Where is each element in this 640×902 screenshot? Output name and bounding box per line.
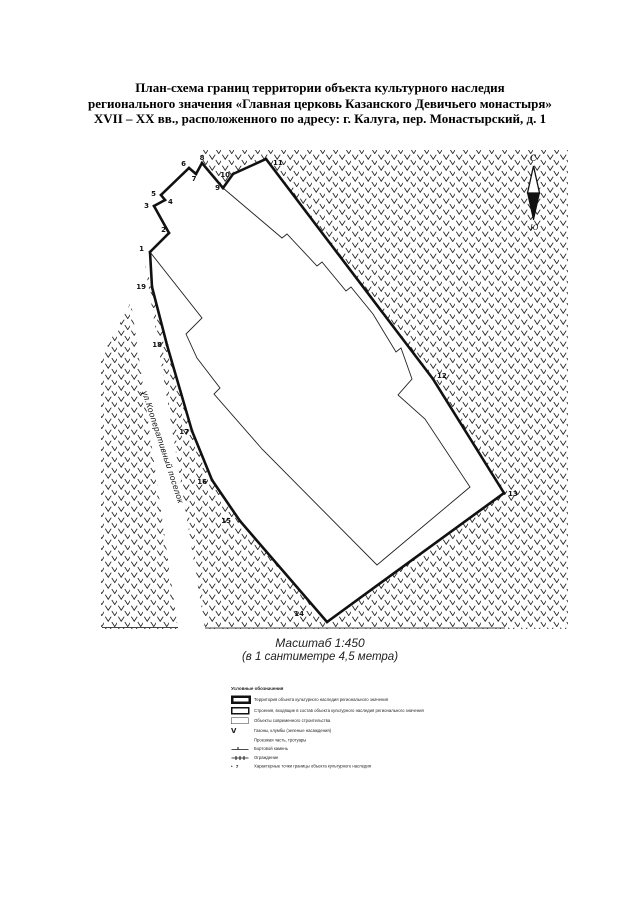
legend-symbol-cell xyxy=(231,718,254,725)
scale-ratio: Масштаб 1:450 xyxy=(0,636,640,650)
boundary-point-label-17: 17 xyxy=(179,428,189,436)
boundary-point-dot-13 xyxy=(503,492,506,495)
boundary-point-label-16: 16 xyxy=(197,478,207,486)
boundary-point-dot-19 xyxy=(151,286,154,289)
legend-title: Условные обозначения xyxy=(231,686,441,691)
boundary-point-dot-17 xyxy=(191,430,194,433)
legend-symbol-lawn-icon: V xyxy=(231,727,236,735)
legend-item-fence: Ограждение xyxy=(231,755,441,761)
boundary-point-label-4: 4 xyxy=(168,198,173,206)
boundary-point-dot-18 xyxy=(166,344,169,347)
boundary-point-label-19: 19 xyxy=(136,283,146,291)
boundary-point-dot-6 xyxy=(188,167,191,170)
legend-item-building: Строения, входящие в состав объекта куль… xyxy=(231,707,441,715)
boundary-point-dot-1 xyxy=(149,251,152,254)
boundary-point-dot-11 xyxy=(265,158,268,161)
compass-north-label: С xyxy=(530,153,537,163)
legend-symbol-territory xyxy=(231,696,251,705)
legend-symbol-curb-icon xyxy=(231,746,250,752)
boundary-point-label-6: 6 xyxy=(181,160,186,168)
document-page: План-схема границ территории объекта кул… xyxy=(0,0,640,902)
legend-item-modern: Объекты современного строительства xyxy=(231,718,441,725)
legend-symbol-cell: V xyxy=(231,727,254,735)
boundary-point-label-12: 12 xyxy=(437,372,447,380)
legend-item-territory: Территория объекта культурного наследия … xyxy=(231,696,441,705)
boundary-point-label-9: 9 xyxy=(215,184,220,192)
boundary-point-dot-4 xyxy=(164,199,167,202)
boundary-point-label-18: 18 xyxy=(152,341,162,349)
boundary-point-label-3: 3 xyxy=(144,202,149,210)
legend-symbol-cell xyxy=(231,746,254,752)
boundary-point-label-15: 15 xyxy=(221,517,231,525)
legend-symbol-fence-icon xyxy=(231,755,250,761)
boundary-point-dot-5 xyxy=(160,194,163,197)
legend-symbol-cell: • 7 xyxy=(231,764,254,769)
legend-symbol-point: • 7 xyxy=(231,764,239,769)
legend-item-label: Бортовой камень xyxy=(254,746,288,751)
boundary-point-label-7: 7 xyxy=(192,175,197,183)
boundary-point-dot-9 xyxy=(222,187,225,190)
legend-symbol-modern xyxy=(231,718,249,725)
boundary-point-dot-14 xyxy=(326,621,329,624)
boundary-point-dot-12 xyxy=(432,378,435,381)
boundary-point-dot-16 xyxy=(211,479,214,482)
boundary-point-dot-10 xyxy=(232,173,235,176)
legend-symbol-cell xyxy=(231,739,254,742)
legend-item-label: Проезжая часть, тротуары xyxy=(254,738,306,743)
compass-south-label: Ю xyxy=(529,223,539,232)
boundary-point-dot-2 xyxy=(168,232,171,235)
legend: Условные обозначения Территория объекта … xyxy=(231,686,441,772)
boundary-point-label-1: 1 xyxy=(139,245,144,253)
boundary-point-label-10: 10 xyxy=(220,171,230,179)
legend-item-label: Объекты современного строительства xyxy=(254,718,330,723)
legend-item-label: Газоны, клумбы (зеленые насаждения) xyxy=(254,729,331,734)
legend-symbol-building xyxy=(231,707,250,715)
legend-item-label: Ограждение xyxy=(254,755,278,760)
legend-item-roadway: Проезжая часть, тротуары xyxy=(231,738,441,743)
legend-item-curb: Бортовой камень xyxy=(231,746,441,752)
legend-item-point: • 7Характерные точки границы объекта кул… xyxy=(231,764,441,769)
legend-symbol-cell xyxy=(231,755,254,761)
scale-caption: Масштаб 1:450 (в 1 сантиметре 4,5 метра) xyxy=(0,636,640,664)
legend-item-label: Строения, входящие в состав объекта куль… xyxy=(254,708,424,713)
boundary-point-dot-15 xyxy=(239,520,242,523)
boundary-point-dot-3 xyxy=(153,205,156,208)
legend-item-lawn: VГазоны, клумбы (зеленые насаждения) xyxy=(231,727,441,735)
boundary-point-label-14: 14 xyxy=(294,610,304,618)
legend-symbol-cell xyxy=(231,696,254,705)
legend-item-label: Характерные точки границы объекта культу… xyxy=(254,764,371,769)
legend-symbol-roadway xyxy=(231,739,249,742)
legend-item-label: Территория объекта культурного наследия … xyxy=(254,697,388,702)
legend-items: Территория объекта культурного наследия … xyxy=(231,696,441,769)
boundary-point-label-8: 8 xyxy=(200,154,205,162)
legend-symbol-cell xyxy=(231,707,254,715)
boundary-point-label-5: 5 xyxy=(151,190,156,198)
boundary-point-label-11: 11 xyxy=(273,159,283,167)
scale-note: (в 1 сантиметре 4,5 метра) xyxy=(0,650,640,664)
boundary-point-label-13: 13 xyxy=(508,490,518,498)
boundary-point-dot-8 xyxy=(201,162,204,165)
boundary-point-label-2: 2 xyxy=(161,226,166,234)
